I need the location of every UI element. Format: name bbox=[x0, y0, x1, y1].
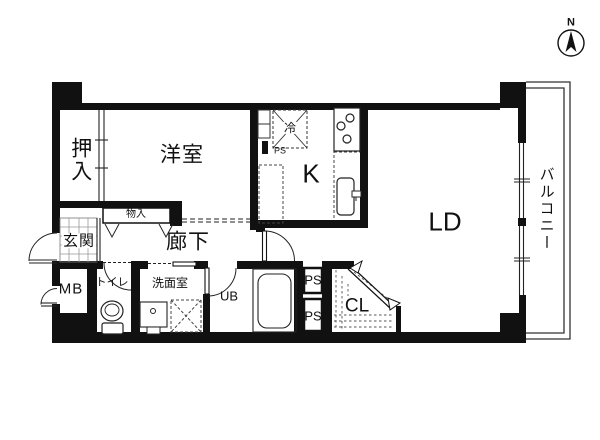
washbasin-icon bbox=[140, 302, 167, 334]
entrance-door-arc bbox=[29, 233, 57, 263]
toilet-door-arc bbox=[103, 263, 131, 291]
washing-machine-space bbox=[171, 300, 201, 332]
bathtub-icon bbox=[253, 269, 296, 332]
stove-icon bbox=[334, 108, 360, 151]
storage-box bbox=[103, 208, 173, 237]
wall-ps-closet bbox=[322, 269, 332, 332]
meter-box-door-arc bbox=[41, 289, 57, 307]
compass-icon bbox=[558, 30, 584, 56]
wall-hallway-south-d bbox=[237, 261, 303, 269]
closet-door-diagonal bbox=[348, 261, 400, 310]
wall-closet-north bbox=[322, 261, 354, 269]
wall-kitchen-west bbox=[250, 103, 258, 230]
wall-kitchen-ps-stub bbox=[262, 141, 268, 154]
wall-toilet-east bbox=[131, 261, 140, 332]
kitchen-cupboard-space bbox=[259, 165, 283, 223]
wall-washroom-bath bbox=[203, 294, 210, 332]
washroom-sliding-door bbox=[148, 262, 196, 266]
wall-bath-east bbox=[294, 261, 303, 332]
wall-bottom-left-block bbox=[52, 313, 87, 343]
floor-plan: 押入 洋室 物入 K 冷 PS LD バルコニー 玄関 廊下 MB トイレ 洗面… bbox=[0, 0, 600, 440]
ps-box-1 bbox=[304, 268, 322, 293]
wall-top bbox=[82, 103, 500, 110]
balcony-railing bbox=[526, 82, 570, 339]
balcony-window bbox=[514, 143, 530, 295]
wall-closet-east bbox=[396, 306, 401, 332]
wall-kitchen-east bbox=[360, 103, 368, 228]
wall-right-lower bbox=[519, 295, 526, 313]
wall-oshiire-south bbox=[52, 201, 170, 208]
wall-hallway-east-stub bbox=[256, 220, 265, 232]
entrance-tile-floor bbox=[60, 218, 97, 262]
kitchen-sink-icon bbox=[337, 178, 361, 215]
wall-pillar-hallway bbox=[170, 201, 182, 226]
bath-door-arc bbox=[205, 268, 236, 296]
living-door-arc bbox=[263, 231, 295, 261]
entrance-step-line bbox=[97, 218, 100, 262]
ps-box-2 bbox=[304, 299, 322, 331]
western-room-opening bbox=[182, 219, 250, 222]
wall-bottom-right-block bbox=[500, 313, 526, 343]
wall-left-upper bbox=[52, 104, 60, 233]
pipe-space-boxes bbox=[304, 268, 322, 331]
wall-right-upper bbox=[518, 108, 526, 143]
kitchen-switch-boxes bbox=[258, 110, 270, 138]
floor-plan-drawing bbox=[0, 0, 600, 440]
toilet-icon bbox=[101, 301, 123, 334]
wall-kitchen-south bbox=[258, 220, 368, 228]
oshiire-sliding-door bbox=[95, 110, 108, 201]
refrigerator-space bbox=[273, 110, 307, 148]
closet-hatching bbox=[334, 270, 394, 330]
wall-mb-east bbox=[87, 261, 97, 332]
wall-top-right-block bbox=[500, 82, 526, 108]
